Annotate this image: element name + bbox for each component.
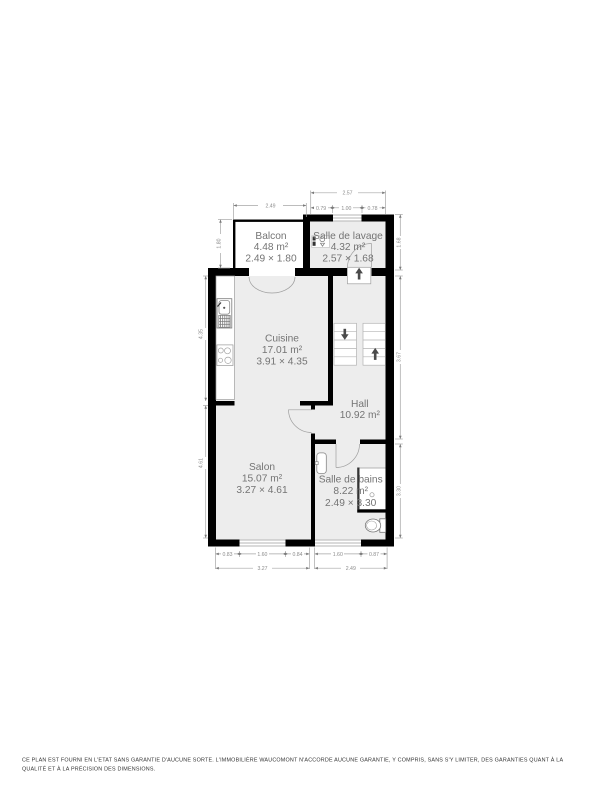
svg-text:1.60: 1.60 xyxy=(333,552,343,558)
svg-text:15.07 m²: 15.07 m² xyxy=(242,474,283,485)
svg-text:1.00: 1.00 xyxy=(341,206,351,212)
svg-text:Salle de bains: Salle de bains xyxy=(319,474,383,485)
svg-text:3.30: 3.30 xyxy=(396,486,402,496)
svg-text:Hall: Hall xyxy=(351,399,369,410)
svg-text:17.01 m²: 17.01 m² xyxy=(262,345,303,356)
svg-text:3.67: 3.67 xyxy=(396,352,402,362)
svg-text:2.49: 2.49 xyxy=(265,203,275,209)
svg-text:2.49: 2.49 xyxy=(346,566,356,572)
svg-text:4.48 m²: 4.48 m² xyxy=(254,242,289,253)
svg-text:2.57: 2.57 xyxy=(342,191,352,197)
svg-text:2.49 × 1.80: 2.49 × 1.80 xyxy=(245,253,297,264)
svg-text:4.35: 4.35 xyxy=(199,329,205,339)
svg-text:8.22 m²: 8.22 m² xyxy=(333,486,368,497)
svg-text:4.61: 4.61 xyxy=(199,458,205,468)
svg-text:QUALITÉ ET À LA PRÉCISION DES: QUALITÉ ET À LA PRÉCISION DES DIMENSIONS… xyxy=(22,766,155,773)
svg-text:1.60: 1.60 xyxy=(257,552,267,558)
svg-text:2.57 × 1.68: 2.57 × 1.68 xyxy=(322,253,374,264)
svg-text:Salle de lavage: Salle de lavage xyxy=(313,231,383,242)
svg-text:3.27: 3.27 xyxy=(257,566,267,572)
svg-text:Balcon: Balcon xyxy=(255,231,286,242)
svg-text:0.84: 0.84 xyxy=(292,552,302,558)
svg-text:4.32 m²: 4.32 m² xyxy=(331,242,366,253)
svg-text:1.80: 1.80 xyxy=(217,238,223,248)
svg-text:0.87: 0.87 xyxy=(369,552,379,558)
svg-text:0.78: 0.78 xyxy=(367,206,377,212)
svg-text:2.49 × 3.30: 2.49 × 3.30 xyxy=(325,498,377,509)
svg-text:0.79: 0.79 xyxy=(316,206,326,212)
svg-text:CE PLAN EST FOURNI EN L'ETAT S: CE PLAN EST FOURNI EN L'ETAT SANS GARANT… xyxy=(22,757,563,764)
svg-text:10.92 m²: 10.92 m² xyxy=(340,410,381,421)
svg-text:Salon: Salon xyxy=(249,462,275,473)
svg-text:Cuisine: Cuisine xyxy=(265,334,299,345)
svg-text:0.83: 0.83 xyxy=(222,552,232,558)
svg-text:3.91 × 4.35: 3.91 × 4.35 xyxy=(256,357,308,368)
svg-text:3.27 × 4.61: 3.27 × 4.61 xyxy=(236,485,288,496)
svg-text:1.68: 1.68 xyxy=(396,237,402,247)
